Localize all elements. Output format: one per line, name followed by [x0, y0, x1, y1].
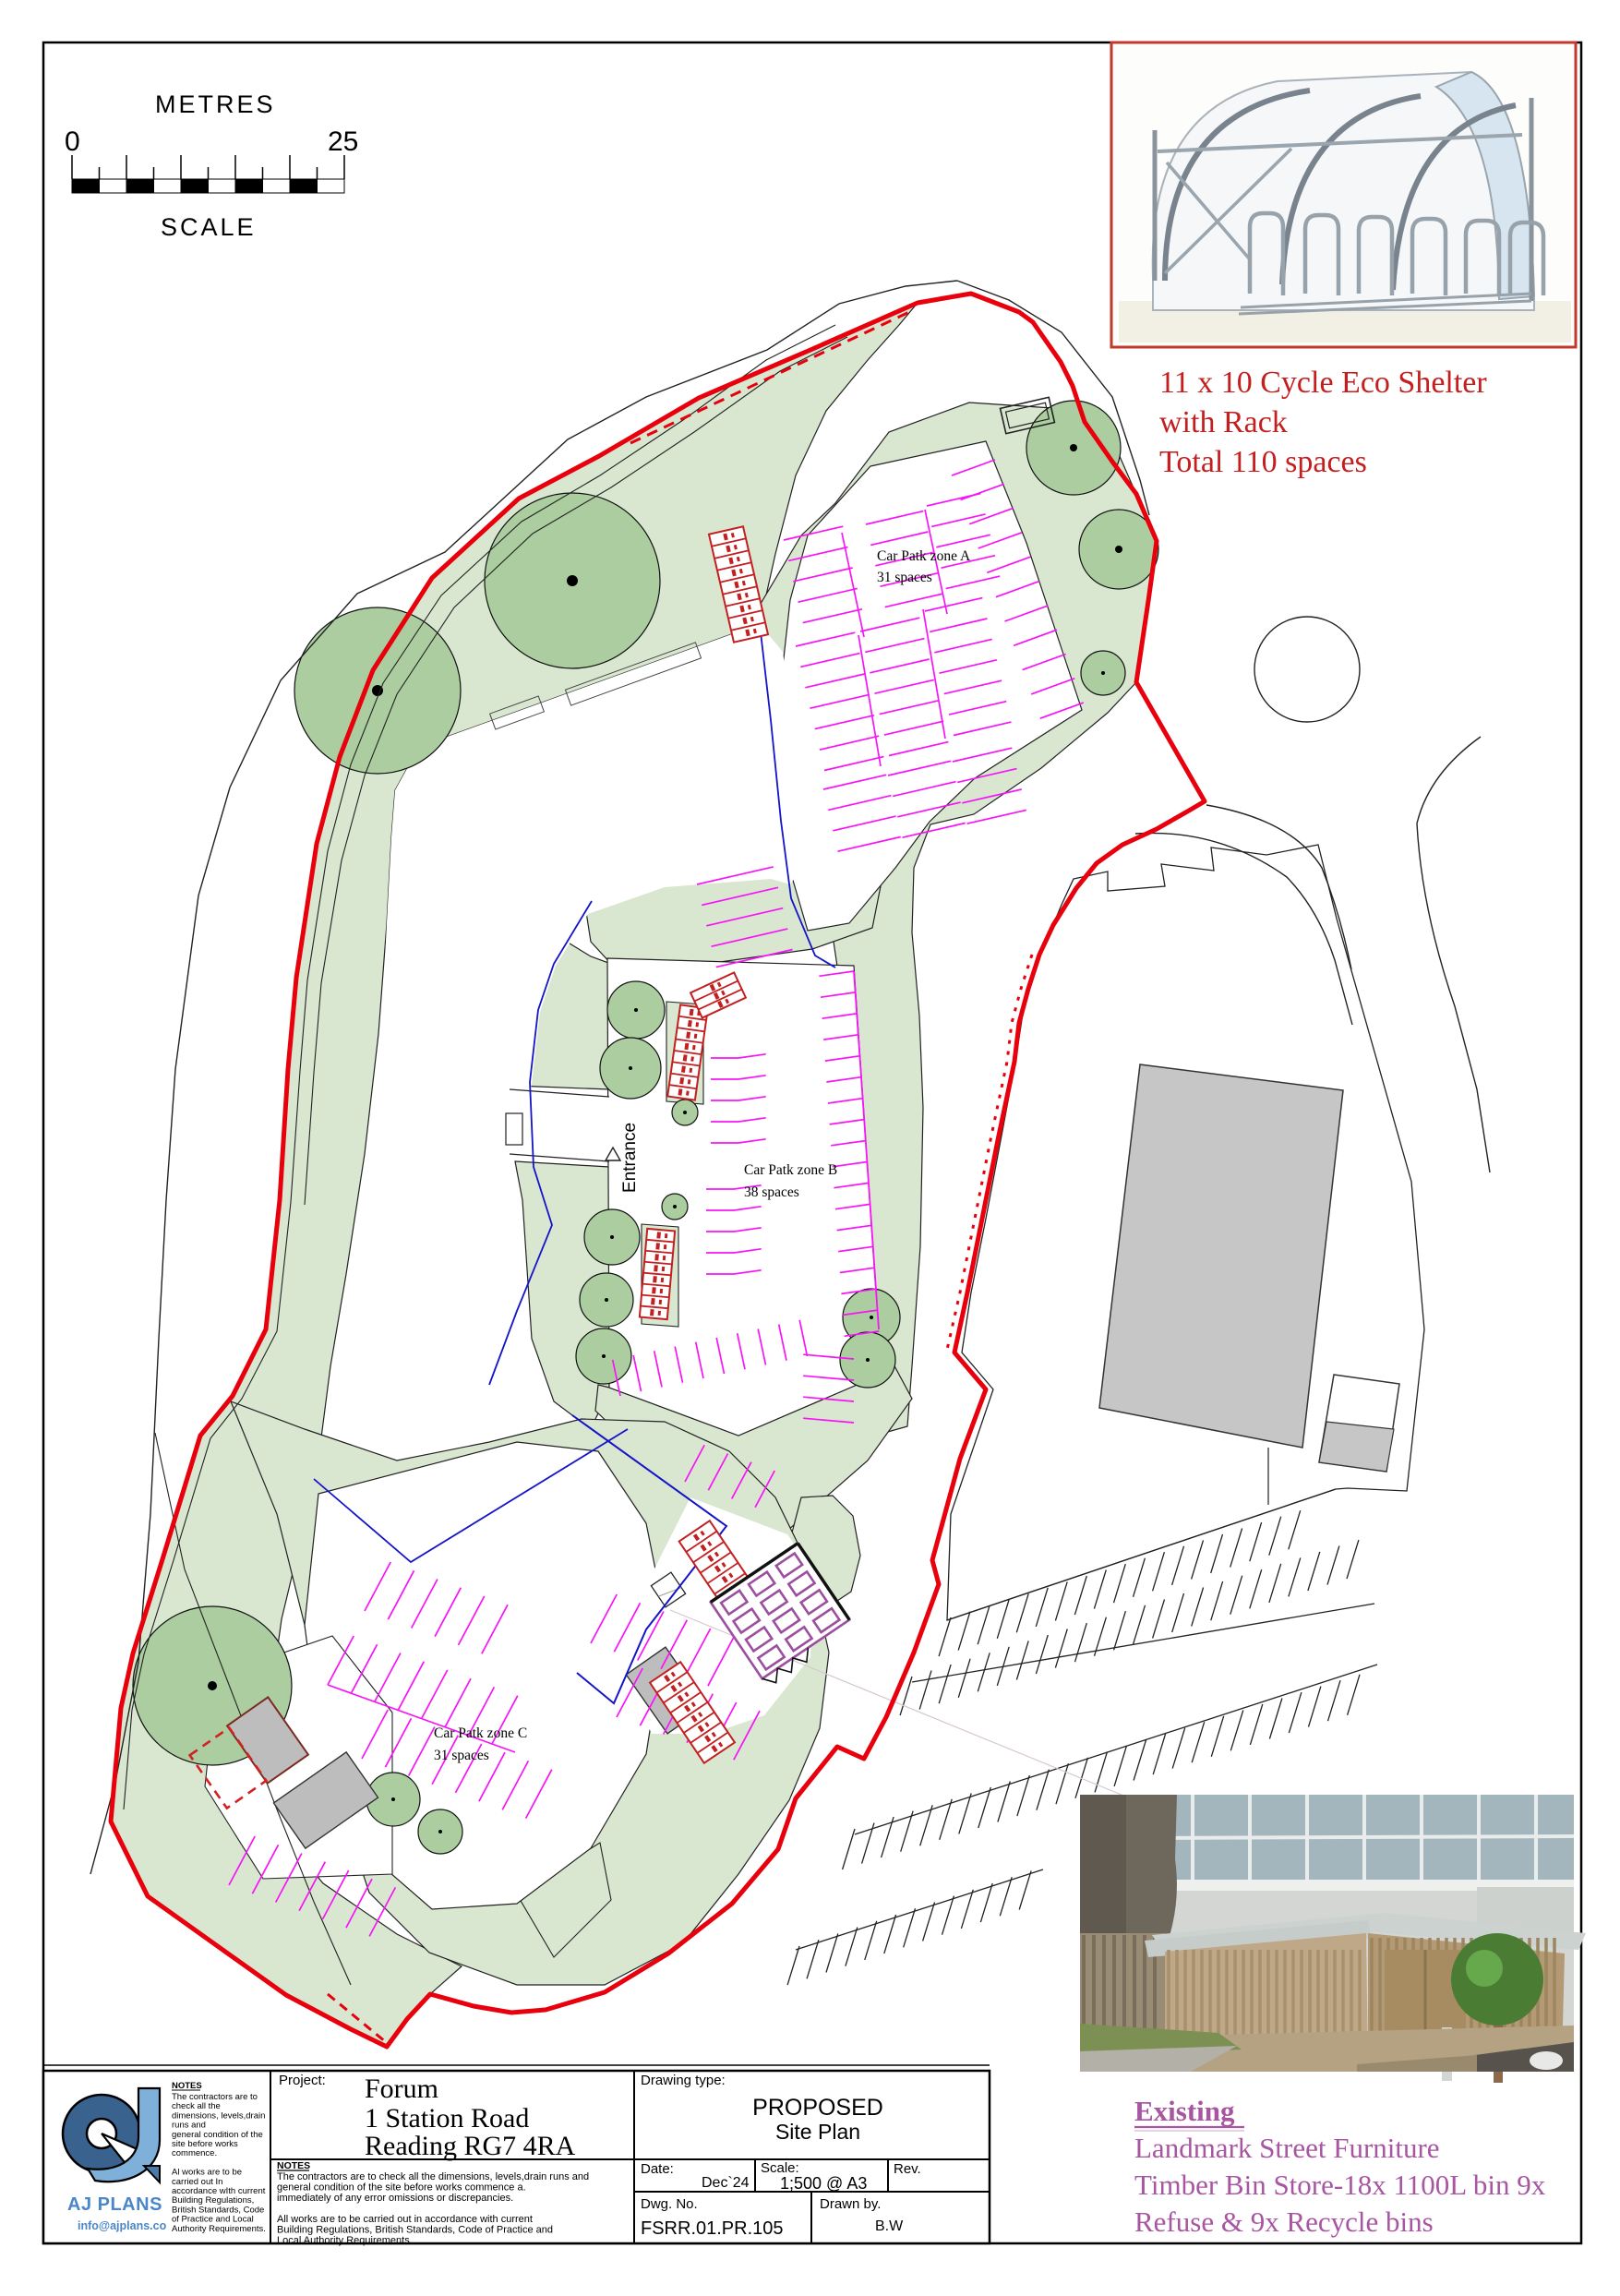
- svg-text:1;500 @ A3: 1;500 @ A3: [780, 2174, 867, 2193]
- svg-text:commence.: commence.: [172, 2148, 217, 2158]
- svg-text:Project:: Project:: [279, 2073, 326, 2088]
- svg-text:31 spaces: 31 spaces: [877, 570, 932, 585]
- svg-text:SCALE: SCALE: [161, 213, 257, 241]
- svg-text:Timber Bin Store-18x 1100L bin: Timber Bin Store-18x 1100L bin 9x: [1134, 2169, 1546, 2201]
- svg-text:25: 25: [328, 126, 358, 157]
- svg-text:Rev.: Rev.: [894, 2161, 921, 2177]
- svg-text:Site Plan: Site Plan: [775, 2120, 860, 2144]
- svg-text:with Rack: with Rack: [1159, 405, 1288, 439]
- svg-text:38 spaces: 38 spaces: [744, 1184, 799, 1200]
- svg-text:Car Patk zone C: Car Patk zone C: [434, 1725, 527, 1741]
- svg-text:0: 0: [65, 126, 80, 157]
- svg-text:Drawn by.: Drawn by.: [820, 2196, 881, 2212]
- svg-text:Total 110 spaces: Total 110 spaces: [1159, 445, 1367, 479]
- svg-text:info@ajplans.co: info@ajplans.co: [78, 2219, 167, 2232]
- svg-text:31 spaces: 31 spaces: [434, 1748, 489, 1763]
- svg-text:Car Patk zone B: Car Patk zone B: [744, 1162, 837, 1178]
- svg-text:general condition of the site: general condition of the site before wor…: [277, 2182, 526, 2194]
- svg-text:Reading RG7 4RA: Reading RG7 4RA: [365, 2131, 576, 2161]
- svg-text:All works are to be carried ou: All works are to be carried out in accor…: [277, 2214, 533, 2225]
- svg-text:Drawing type:: Drawing type:: [641, 2073, 726, 2088]
- svg-text:Landmark Street Furniture: Landmark Street Furniture: [1134, 2132, 1440, 2164]
- svg-text:Refuse & 9x Recycle bins: Refuse & 9x Recycle bins: [1134, 2206, 1434, 2238]
- svg-text:Car Patk zone A: Car Patk zone A: [877, 548, 971, 564]
- svg-text:Existing: Existing: [1134, 2095, 1235, 2127]
- svg-text:B.W: B.W: [875, 2218, 904, 2234]
- svg-text:Dec`24: Dec`24: [702, 2175, 750, 2191]
- svg-text:Entrance: Entrance: [620, 1123, 640, 1193]
- svg-text:Authority Requirements.: Authority Requirements.: [172, 2224, 266, 2234]
- svg-text:NOTES: NOTES: [277, 2160, 310, 2171]
- svg-text:Date:: Date:: [641, 2161, 674, 2177]
- svg-text:Forum: Forum: [365, 2074, 438, 2104]
- svg-text:1 Station Road: 1 Station Road: [365, 2103, 529, 2134]
- svg-text:11 x 10 Cycle Eco Shelter: 11 x 10 Cycle Eco Shelter: [1159, 366, 1487, 400]
- svg-text:Dwg. No.: Dwg. No.: [641, 2196, 698, 2212]
- svg-text:PROPOSED: PROPOSED: [752, 2095, 883, 2121]
- svg-text:METRES: METRES: [155, 90, 276, 118]
- svg-text:Local Authority Requirements.: Local Authority Requirements.: [277, 2235, 413, 2246]
- svg-text:NOTES: NOTES: [172, 2081, 202, 2091]
- svg-text:Building Regulations, British: Building Regulations, British Standards,…: [277, 2225, 553, 2236]
- svg-text:immediately of any error omiss: immediately of any error omissions or di…: [277, 2193, 513, 2204]
- svg-text:AJ PLANS: AJ PLANS: [67, 2194, 162, 2215]
- svg-text:The contractors are to check a: The contractors are to check all the dim…: [277, 2171, 589, 2182]
- svg-text:FSRR.01.PR.105: FSRR.01.PR.105: [641, 2218, 784, 2239]
